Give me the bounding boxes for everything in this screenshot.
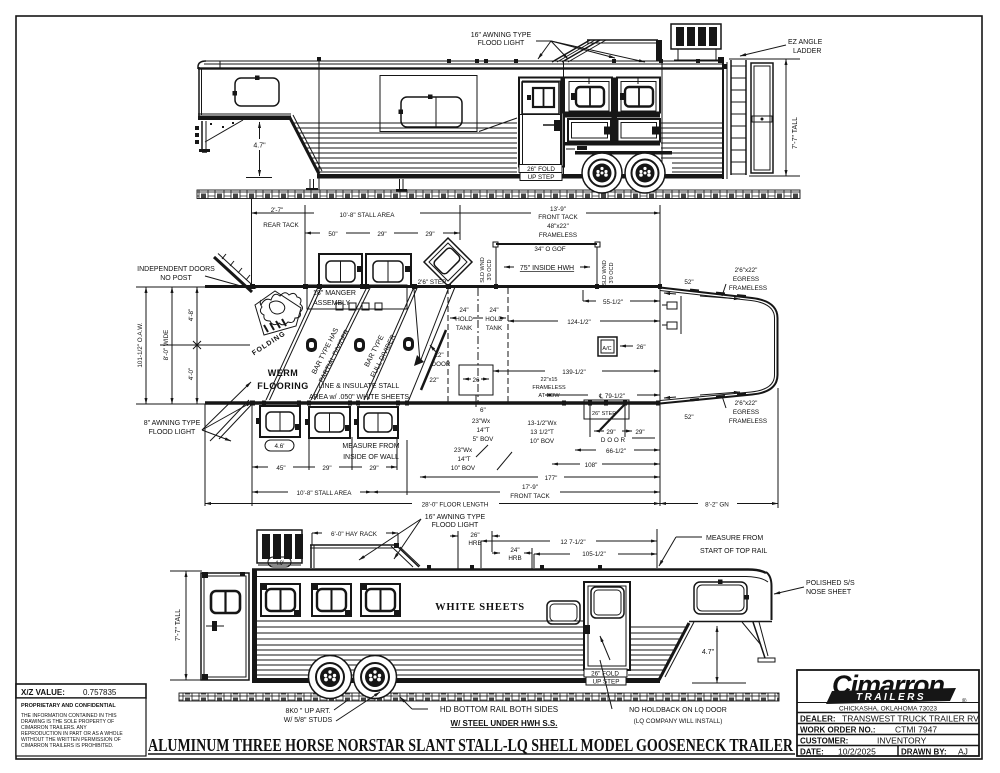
svg-text:26" FOLD: 26" FOLD [591,671,619,678]
svg-text:22": 22" [429,377,438,384]
svg-text:TANK: TANK [456,325,473,332]
svg-text:14"T: 14"T [457,456,470,463]
svg-text:EZ ANGLE: EZ ANGLE [788,39,823,46]
svg-text:28'-0" FLOOR LENGTH: 28'-0" FLOOR LENGTH [422,502,489,509]
svg-text:FRONT TACK: FRONT TACK [510,493,550,500]
svg-text:29": 29" [322,465,331,472]
svg-text:REAR TACK: REAR TACK [263,222,299,229]
svg-text:AT BOW: AT BOW [538,393,560,399]
svg-text:DRAWN BY:: DRAWN BY: [901,748,947,757]
svg-text:14"T: 14"T [476,427,489,434]
svg-text:2'6"x22": 2'6"x22" [735,400,758,407]
svg-text:INVENTORY: INVENTORY [877,736,927,746]
svg-text:7'-7" TALL: 7'-7" TALL [792,117,799,149]
svg-text:8K0 " UP ART.: 8K0 " UP ART. [285,708,330,715]
svg-text:HOLD: HOLD [485,316,503,323]
svg-text:FRAMELESS: FRAMELESS [729,418,767,425]
svg-text:13 1/2"T: 13 1/2"T [530,429,554,436]
svg-text:29": 29" [377,231,386,238]
svg-text:FLOOD LIGHT: FLOOD LIGHT [149,429,196,436]
svg-text:139-1/2": 139-1/2" [562,369,586,376]
svg-text:W/ STEEL UNDER HWH S.S.: W/ STEEL UNDER HWH S.S. [451,719,558,728]
svg-text:HD BOTTOM RAIL BOTH SIDES: HD BOTTOM RAIL BOTH SIDES [440,705,558,714]
svg-text:ALUMINUM THREE HORSE NORSTAR S: ALUMINUM THREE HORSE NORSTAR SLANT STALL… [148,735,794,755]
svg-text:29": 29" [635,429,644,436]
svg-text:23"Wx: 23"Wx [454,447,473,454]
svg-text:12 7-1/2": 12 7-1/2" [560,539,585,546]
svg-text:TRAILERS: TRAILERS [856,692,926,703]
svg-text:NO POST: NO POST [160,275,192,282]
svg-text:℄ 79-1/2": ℄ 79-1/2" [598,393,625,400]
svg-text:UP STEP: UP STEP [528,174,555,181]
svg-text:6'-0" HAY RACK: 6'-0" HAY RACK [331,531,378,538]
svg-text:13-1/2"Wx: 13-1/2"Wx [527,420,557,427]
svg-text:DATE:: DATE: [800,748,824,757]
svg-text:2'6" STEP: 2'6" STEP [418,279,447,286]
svg-text:TRANSWEST TRUCK TRAILER RV: TRANSWEST TRUCK TRAILER RV [842,714,979,724]
svg-text:177": 177" [545,475,558,482]
svg-text:29": 29" [425,231,434,238]
svg-text:34" O GOF: 34" O GOF [534,246,565,253]
svg-text:22"x15: 22"x15 [541,377,558,383]
svg-text:8" AWNING TYPE: 8" AWNING TYPE [144,420,201,427]
svg-text:4'-8": 4'-8" [188,309,195,322]
svg-text:FRAMELESS: FRAMELESS [729,285,767,292]
svg-text:52": 52" [684,414,693,421]
svg-text:13'-9": 13'-9" [550,206,566,213]
svg-text:FLOORING: FLOORING [257,381,309,391]
svg-text:POLISHED S/S: POLISHED S/S [806,580,855,587]
svg-text:TANK: TANK [486,325,503,332]
svg-text:WERM: WERM [268,368,299,378]
svg-text:124-1/2": 124-1/2" [567,319,591,326]
svg-text:16" AWNING TYPE: 16" AWNING TYPE [425,514,486,521]
svg-text:4'-0": 4'-0" [188,368,195,381]
svg-text:105-1/2": 105-1/2" [582,551,606,558]
svg-text:75" INSIDE HWH: 75" INSIDE HWH [520,265,574,272]
svg-text:24": 24" [459,307,468,314]
svg-text:D O O R: D O O R [601,437,626,444]
svg-text:108": 108" [585,462,598,469]
svg-text:WORK ORDER NO.:: WORK ORDER NO.: [800,726,876,735]
svg-text:4.6': 4.6' [275,443,285,450]
svg-text:6": 6" [480,407,486,414]
svg-text:26": 26" [636,344,645,351]
svg-text:10'-8" STALL AREA: 10'-8" STALL AREA [340,212,396,219]
svg-text:®: ® [962,698,967,705]
svg-text:LINE & INSULATE STALL: LINE & INSULATE STALL [319,383,400,390]
svg-text:HRB: HRB [468,540,481,547]
svg-text:CTMI 7947: CTMI 7947 [895,725,937,735]
svg-text:18" MANGER: 18" MANGER [313,290,356,297]
svg-text:HOLD: HOLD [455,316,473,323]
svg-text:EGRESS: EGRESS [733,276,759,283]
svg-text:INDEPENDENT DOORS: INDEPENDENT DOORS [137,266,215,273]
svg-text:DOOR: DOOR [432,361,451,368]
svg-text:55-1/2": 55-1/2" [603,299,623,306]
svg-text:4.7": 4.7" [702,649,715,656]
svg-text:W/ 5/8" STUDS: W/ 5/8" STUDS [284,717,333,724]
svg-text:FRONT TACK: FRONT TACK [538,214,578,221]
svg-text:FRAMELESS: FRAMELESS [532,385,566,391]
svg-text:2'6"x22": 2'6"x22" [735,267,758,274]
svg-text:26" STEP: 26" STEP [592,411,616,417]
svg-text:26: 26 [472,377,480,384]
svg-text:NOSE SHEET: NOSE SHEET [806,589,852,596]
svg-text:MEASURE FROM: MEASURE FROM [342,443,399,450]
svg-text:17'-9": 17'-9" [522,484,538,491]
svg-text:10'-8" STALL AREA: 10'-8" STALL AREA [297,490,353,497]
svg-text:10" BOV: 10" BOV [451,465,476,472]
svg-text:DEALER:: DEALER: [800,715,836,724]
svg-text:CIMARRON TRAILERS IS PROHIBITE: CIMARRON TRAILERS IS PROHIBITED. [21,743,113,749]
svg-text:3'0 OCD: 3'0 OCD [487,260,493,281]
svg-text:24": 24" [489,307,498,314]
svg-text:INSIDE OF WALL: INSIDE OF WALL [343,454,399,461]
svg-text:8'-2" GN: 8'-2" GN [705,502,729,509]
svg-text:0.757835: 0.757835 [83,688,117,697]
svg-text:FLOOD LIGHT: FLOOD LIGHT [432,522,479,529]
svg-text:3'0 OCD: 3'0 OCD [609,263,615,284]
svg-text:4.7": 4.7" [253,143,266,150]
svg-text:NO HOLDBACK ON LQ DOOR: NO HOLDBACK ON LQ DOOR [629,707,727,714]
svg-text:24": 24" [510,547,519,554]
svg-text:10" BOV: 10" BOV [530,438,555,445]
svg-text:SLD WND: SLD WND [602,260,608,285]
svg-text:CUSTOMER:: CUSTOMER: [800,737,848,746]
svg-text:52": 52" [684,279,693,286]
svg-text:50": 50" [328,231,337,238]
svg-text:A/C: A/C [602,346,611,352]
svg-text:66-1/2": 66-1/2" [606,448,626,455]
svg-text:7'-7" TALL: 7'-7" TALL [175,609,182,641]
svg-text:AREA w/ .050" WHITE SHEETS: AREA w/ .050" WHITE SHEETS [309,394,409,401]
svg-text:CHICKASHA, OKLAHOMA 73023: CHICKASHA, OKLAHOMA 73023 [839,706,937,713]
svg-text:MEASURE FROM: MEASURE FROM [706,535,763,542]
svg-text:PROPRIETARY AND CONFIDENTIAL: PROPRIETARY AND CONFIDENTIAL [21,703,116,709]
svg-text:26": 26" [470,532,479,539]
svg-text:ASSEMBLY: ASSEMBLY [313,300,351,307]
svg-text:29": 29" [369,465,378,472]
svg-text:FRAMELESS: FRAMELESS [539,232,577,239]
svg-text:WHITE SHEETS: WHITE SHEETS [435,602,525,613]
svg-text:2'-7": 2'-7" [271,207,284,214]
svg-text:22": 22" [434,352,443,359]
svg-text:48"x22": 48"x22" [547,223,569,230]
svg-text:FLOOD LIGHT: FLOOD LIGHT [478,40,525,47]
svg-text:45": 45" [276,465,285,472]
svg-text:26" FOLD: 26" FOLD [527,166,555,173]
svg-text:SLD WND: SLD WND [480,257,486,282]
svg-text:EGRESS: EGRESS [733,409,759,416]
svg-text:X/Z VALUE:: X/Z VALUE: [21,688,65,697]
svg-text:16" AWNING TYPE: 16" AWNING TYPE [471,32,532,39]
svg-text:HRB: HRB [508,555,521,562]
svg-text:(LQ COMPANY WILL INSTALL): (LQ COMPANY WILL INSTALL) [634,718,723,725]
svg-text:AJ: AJ [958,747,968,757]
svg-text:START OF TOP RAIL: START OF TOP RAIL [700,548,767,555]
svg-text:LADDER: LADDER [793,48,821,55]
svg-text:23"Wx: 23"Wx [472,418,491,425]
svg-text:10/2/2025: 10/2/2025 [838,747,876,757]
svg-text:101-1/2" O.A.W.: 101-1/2" O.A.W. [137,322,144,368]
svg-text:5" BOV: 5" BOV [473,436,495,443]
svg-text:29": 29" [606,429,615,436]
